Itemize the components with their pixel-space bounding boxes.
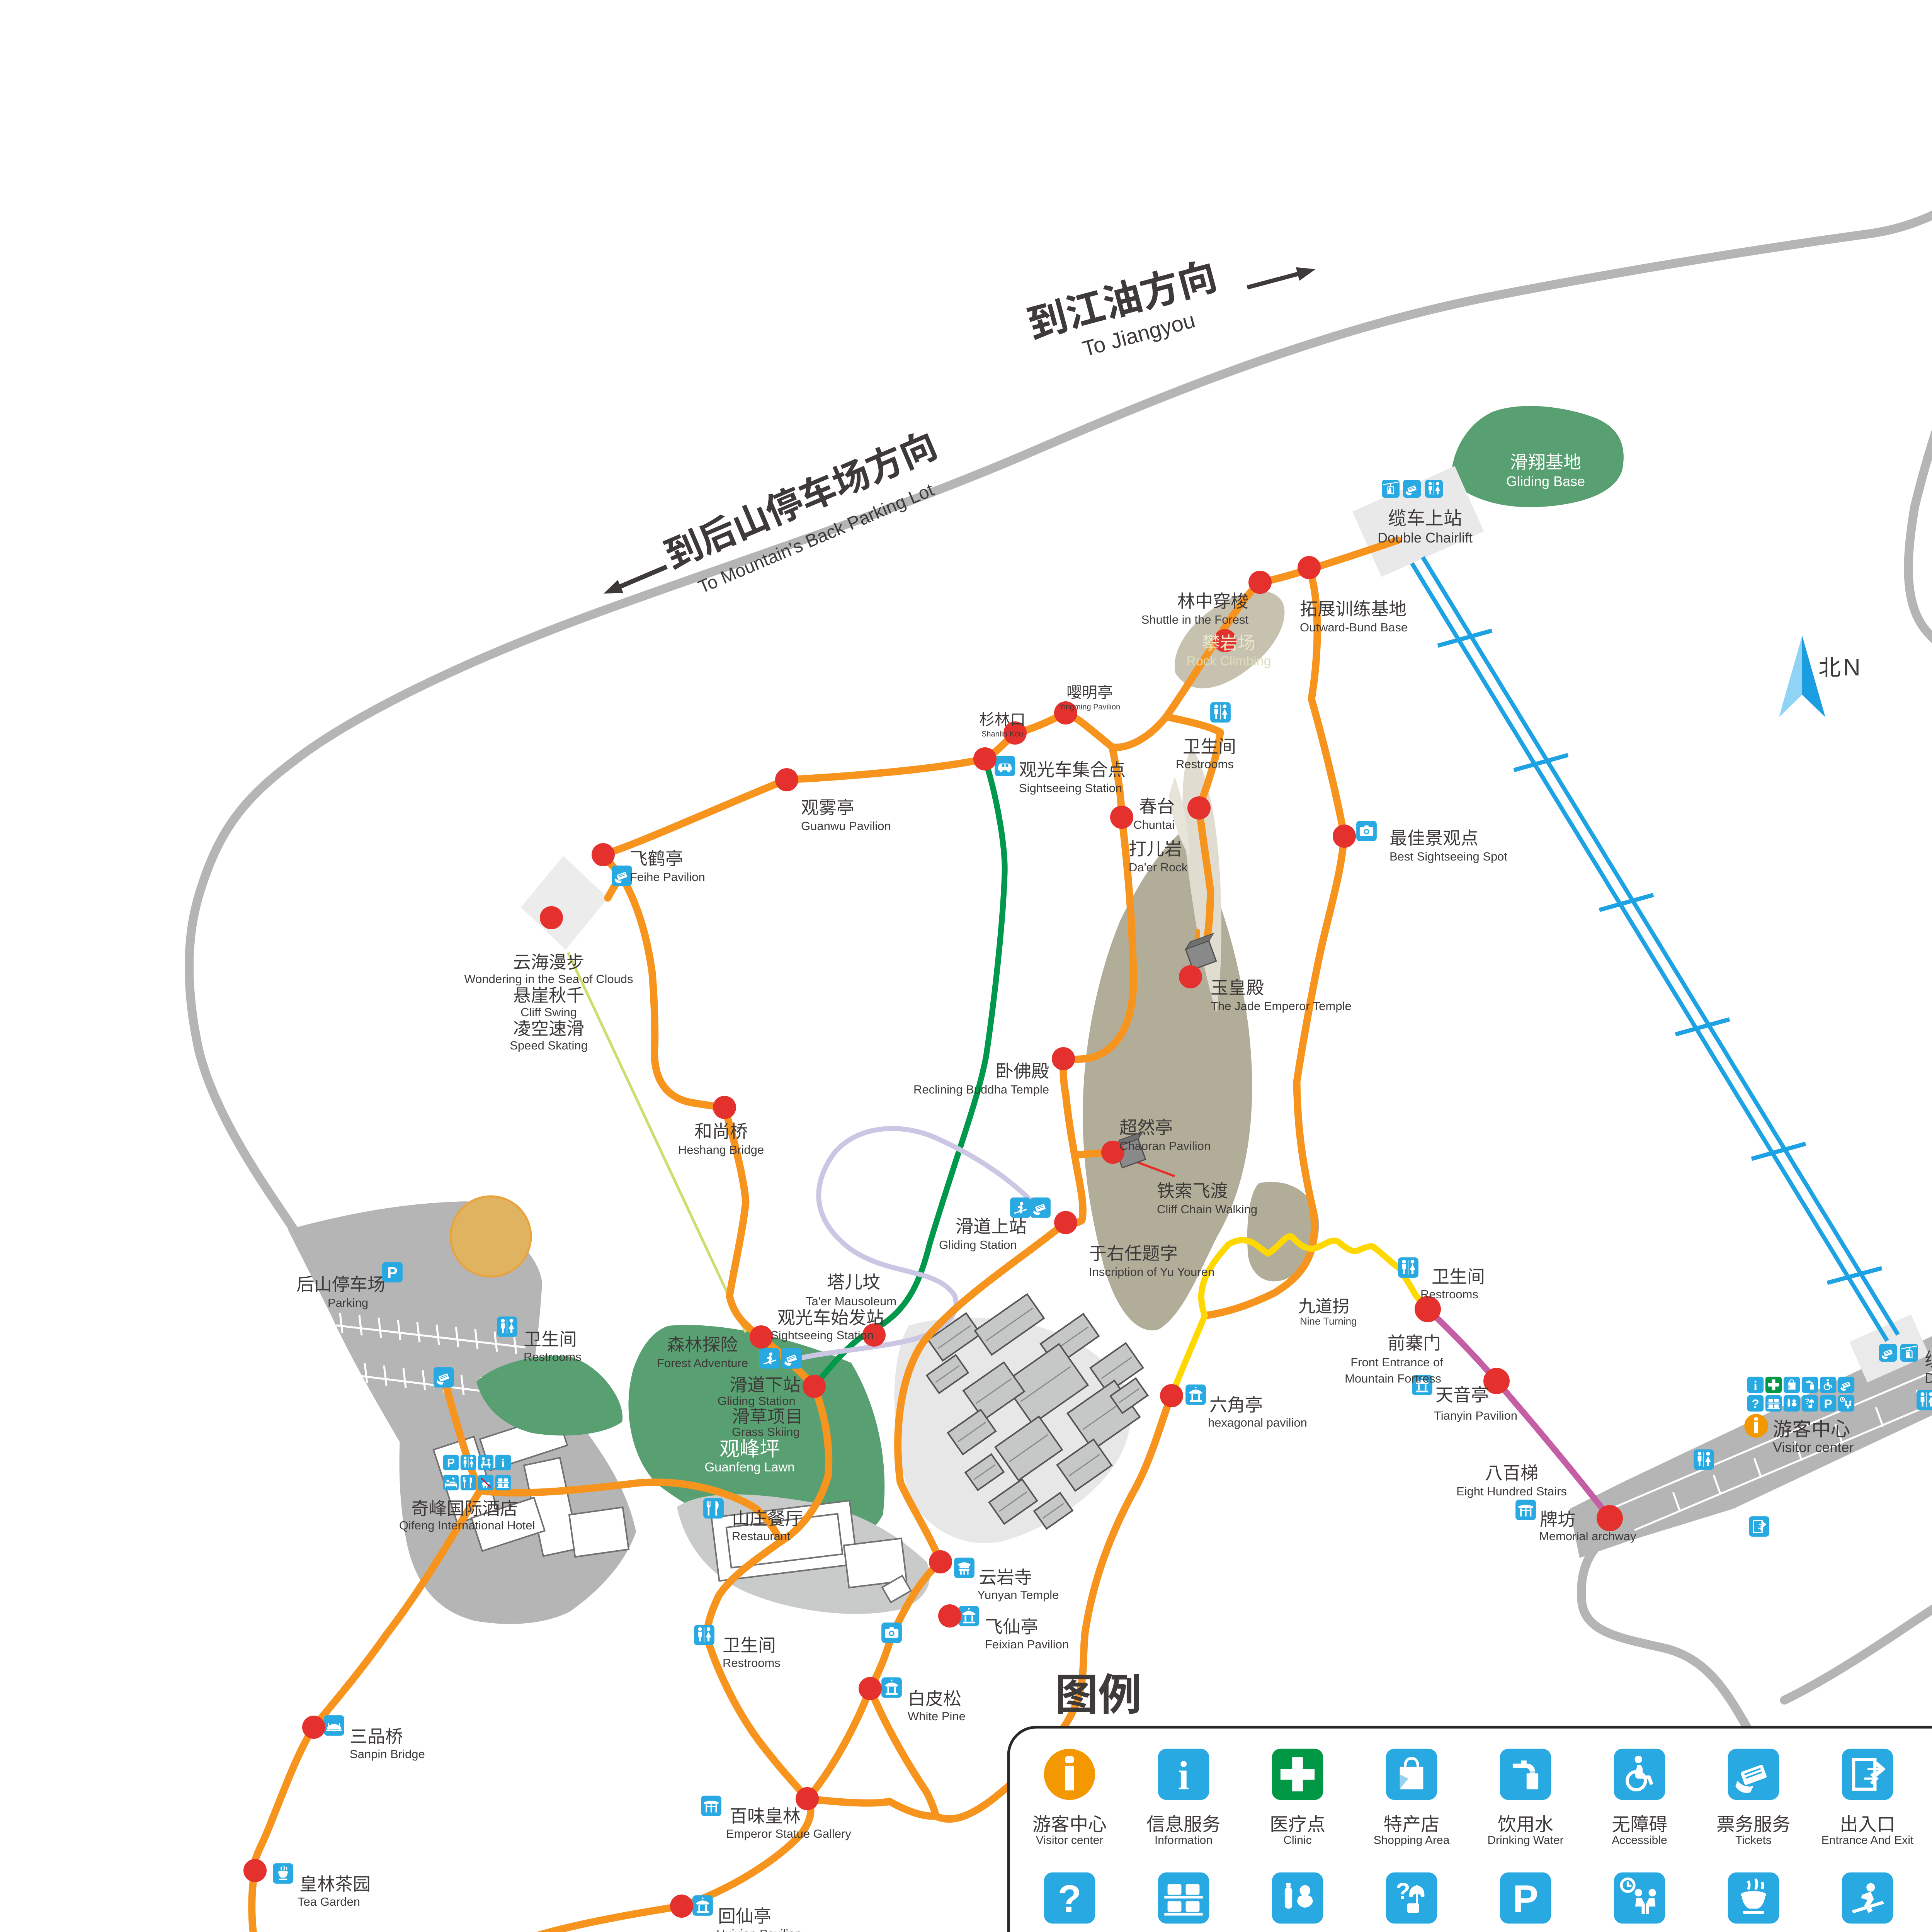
svg-text:Feihe Pavilion: Feihe Pavilion xyxy=(630,870,705,884)
svg-text:Front Entrance of: Front Entrance of xyxy=(1350,1355,1443,1369)
svg-text:Tianyin Pavilion: Tianyin Pavilion xyxy=(1434,1409,1517,1422)
svg-text:Inscription of Yu Youren: Inscription of Yu Youren xyxy=(1089,1265,1214,1279)
svg-text:White Pine: White Pine xyxy=(908,1709,966,1723)
svg-text:Emperor Statue Gallery: Emperor Statue Gallery xyxy=(726,1827,851,1840)
svg-text:Visitor center: Visitor center xyxy=(1036,1834,1104,1847)
svg-text:Restrooms: Restrooms xyxy=(524,1350,582,1364)
svg-text:Tea Garden: Tea Garden xyxy=(298,1895,360,1908)
svg-text:Outward-Bund Base: Outward-Bund Base xyxy=(1300,621,1408,634)
svg-text:The Jade Emperor Temple: The Jade Emperor Temple xyxy=(1211,999,1352,1013)
svg-text:Ta'er Mausoleum: Ta'er Mausoleum xyxy=(806,1294,896,1308)
svg-text:Guanfeng Lawn: Guanfeng Lawn xyxy=(704,1460,794,1474)
svg-text:Nine Turning: Nine Turning xyxy=(1300,1315,1357,1327)
svg-text:Mountain Fortress: Mountain Fortress xyxy=(1345,1372,1441,1385)
svg-text:Gliding Base: Gliding Base xyxy=(1506,473,1585,489)
svg-text:Information: Information xyxy=(1155,1834,1213,1847)
svg-text:Reclining Buddha Temple: Reclining Buddha Temple xyxy=(913,1083,1049,1096)
svg-text:Parking: Parking xyxy=(328,1296,368,1310)
svg-text:Forest Adventure: Forest Adventure xyxy=(657,1356,748,1370)
svg-text:Speed Skating: Speed Skating xyxy=(510,1039,588,1052)
svg-text:Double Chairlift: Double Chairlift xyxy=(1378,530,1473,546)
svg-text:Drinking Water: Drinking Water xyxy=(1487,1834,1563,1847)
svg-text:Cliff Swing: Cliff Swing xyxy=(520,1005,577,1019)
svg-text:Double Chairlift: Double Chairlift xyxy=(1925,1370,1932,1386)
svg-text:Huixian Pavilion: Huixian Pavilion xyxy=(716,1927,802,1932)
svg-text:Restrooms: Restrooms xyxy=(1176,757,1234,771)
svg-text:Wondering in the Sea of Clouds: Wondering in the Sea of Clouds xyxy=(464,972,633,986)
svg-text:N: N xyxy=(1843,654,1861,681)
svg-text:Shopping Area: Shopping Area xyxy=(1374,1834,1450,1847)
svg-text:Restrooms: Restrooms xyxy=(1420,1287,1478,1301)
svg-text:Shuttle in the Forest: Shuttle in the Forest xyxy=(1141,613,1249,626)
svg-text:Shanlin Kou: Shanlin Kou xyxy=(981,730,1023,738)
svg-text:Qifeng International Hotel: Qifeng International Hotel xyxy=(399,1519,535,1532)
svg-text:Guanwu Pavilion: Guanwu Pavilion xyxy=(801,819,891,833)
svg-text:Chuntai: Chuntai xyxy=(1133,818,1175,832)
svg-text:Restrooms: Restrooms xyxy=(723,1656,781,1670)
svg-text:Clinic: Clinic xyxy=(1283,1834,1311,1847)
svg-text:Chaoran Pavilion: Chaoran Pavilion xyxy=(1119,1139,1211,1153)
svg-text:Yunyan Temple: Yunyan Temple xyxy=(977,1588,1059,1602)
svg-text:Memorial archway: Memorial archway xyxy=(1539,1529,1636,1543)
svg-text:Entrance And Exit: Entrance And Exit xyxy=(1821,1834,1914,1847)
svg-text:Sanpin Bridge: Sanpin Bridge xyxy=(350,1747,425,1761)
svg-text:Gliding Station: Gliding Station xyxy=(718,1394,796,1408)
svg-text:Best Sightseeing Spot: Best Sightseeing Spot xyxy=(1389,850,1507,863)
svg-text:Visitor center: Visitor center xyxy=(1773,1439,1854,1455)
svg-text:To Jiangyou: To Jiangyou xyxy=(1080,308,1197,361)
svg-text:Gliding Station: Gliding Station xyxy=(939,1238,1017,1252)
svg-text:Yingming Pavilion: Yingming Pavilion xyxy=(1059,703,1120,711)
svg-text:Eight Hundred Stairs: Eight Hundred Stairs xyxy=(1456,1485,1567,1498)
svg-text:Feixian Pavilion: Feixian Pavilion xyxy=(985,1638,1069,1651)
svg-text:Rock Climbing: Rock Climbing xyxy=(1186,654,1271,668)
svg-text:Cliff Chain Walking: Cliff Chain Walking xyxy=(1157,1202,1257,1216)
svg-text:Sightseeing Station: Sightseeing Station xyxy=(770,1328,874,1342)
svg-text:Da'er Rock: Da'er Rock xyxy=(1129,861,1188,874)
svg-text:Heshang Bridge: Heshang Bridge xyxy=(678,1143,764,1156)
svg-text:Accessible: Accessible xyxy=(1612,1834,1667,1847)
svg-text:Sightseeing Station: Sightseeing Station xyxy=(1019,781,1122,795)
svg-text:Restaurant: Restaurant xyxy=(732,1529,791,1543)
svg-text:Grass Skiing: Grass Skiing xyxy=(732,1425,800,1439)
svg-text:hexagonal pavilion: hexagonal pavilion xyxy=(1208,1416,1307,1429)
svg-text:Tickets: Tickets xyxy=(1735,1834,1772,1847)
